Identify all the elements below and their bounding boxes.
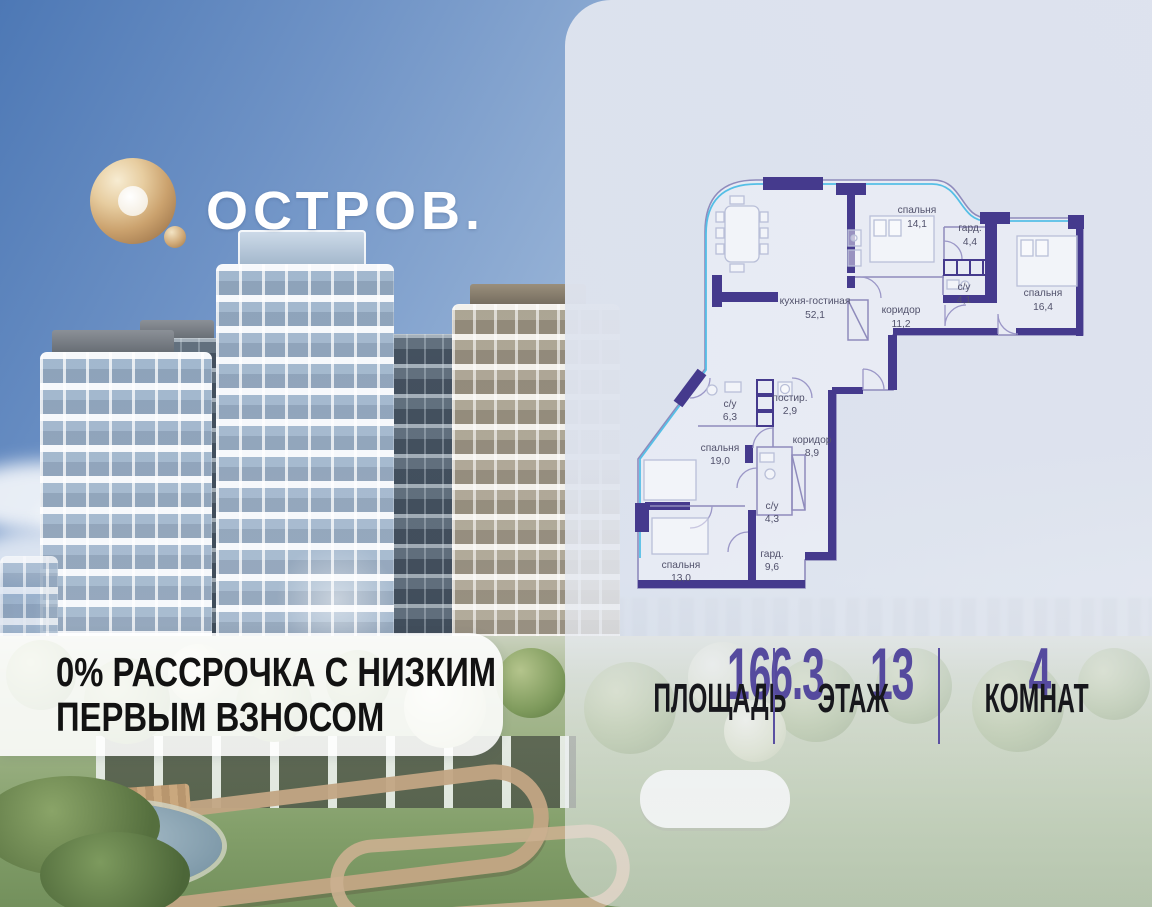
room-label: спальня xyxy=(898,205,937,216)
room-area: 52,1 xyxy=(805,310,825,321)
room-area: 4,4 xyxy=(963,237,977,248)
room-area: 8,9 xyxy=(805,448,819,459)
brand-name: ОСТРОВ. xyxy=(206,180,485,242)
stat-rooms: 4 КОМНАТ xyxy=(950,645,1090,722)
stat-area: 166.3 ПЛОЩАДЬ xyxy=(609,645,769,722)
logo-dot-icon xyxy=(164,226,186,248)
room-label: постир. xyxy=(772,393,807,404)
room-area: 16,4 xyxy=(1033,302,1053,313)
logo-ring-icon xyxy=(90,158,176,244)
room-area: 2,9 xyxy=(783,406,797,417)
room-label: гард. xyxy=(958,223,981,234)
room-label: спальня xyxy=(662,560,701,571)
room-label: спальня xyxy=(701,443,740,454)
room-label: кухня-гостиная xyxy=(780,296,851,307)
promo-banner: 0% РАССРОЧКА С НИЗКИМ ПЕРВЫМ ВЗНОСОМ xyxy=(0,633,503,756)
room-area: 9,6 xyxy=(765,562,779,573)
floorplan: спальня 14,1 гард. 4,4 с/у 4,1 спальня 1… xyxy=(632,168,1087,593)
promo-card: спальня 14,1 гард. 4,4 с/у 4,1 спальня 1… xyxy=(0,0,1152,907)
room-area: 4,1 xyxy=(957,295,971,306)
stat-area-label: ПЛОЩАДЬ xyxy=(653,675,786,722)
room-label: с/у xyxy=(723,399,737,410)
room-label: коридор xyxy=(882,305,921,316)
promo-line-2: ПЕРВЫМ ВЗНОСОМ xyxy=(56,695,414,740)
room-area: 6,3 xyxy=(723,412,737,423)
room-label: спальня xyxy=(1024,288,1063,299)
room-area: 13,0 xyxy=(671,573,691,584)
room-area: 4,3 xyxy=(765,514,779,525)
promo-line-1: 0% РАССРОЧКА С НИЗКИМ xyxy=(56,650,414,695)
room-area: 14,1 xyxy=(907,219,927,230)
tree xyxy=(496,648,566,718)
stat-floor-label: ЭТАЖ xyxy=(818,675,889,722)
floorplan-drawing: спальня 14,1 гард. 4,4 с/у 4,1 спальня 1… xyxy=(632,168,1087,593)
stat-floor: 13 ЭТАЖ xyxy=(783,645,923,722)
stat-divider xyxy=(938,648,940,744)
room-area: 11,2 xyxy=(891,319,910,330)
room-label: с/у xyxy=(765,501,779,512)
room-label: с/у xyxy=(957,282,971,293)
room-label: коридор xyxy=(793,435,832,446)
stat-rooms-label: КОМНАТ xyxy=(985,675,1089,722)
stat-divider xyxy=(773,648,775,744)
info-panel: спальня 14,1 гард. 4,4 с/у 4,1 спальня 1… xyxy=(565,0,1152,907)
room-area: 19,0 xyxy=(710,456,730,467)
room-label: гард. xyxy=(760,549,783,560)
